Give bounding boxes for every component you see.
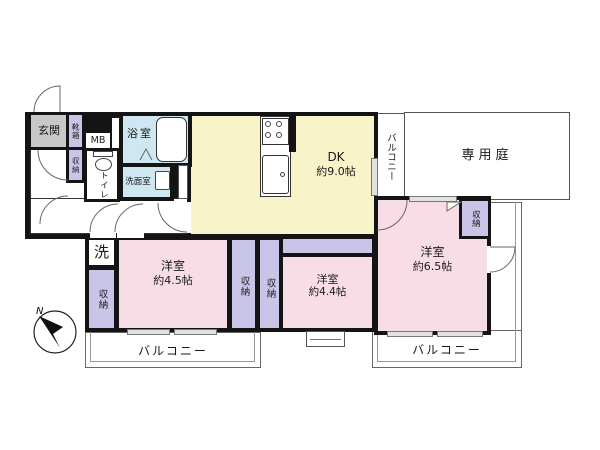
dk-door-arc <box>158 203 187 232</box>
room45-door-arc <box>115 204 143 232</box>
entrance-door-arc <box>34 86 60 112</box>
hall-door-arc <box>40 196 68 224</box>
folding-door-mark <box>140 149 152 160</box>
hall-door-arc <box>90 204 118 232</box>
room65-door-arc <box>377 200 407 230</box>
door-arcs <box>34 86 515 272</box>
room65-garden-door-arc <box>490 247 515 272</box>
floor-plan: 玄関 靴箱 MB 収納 トイレ 浴室 洗面室 DK約9.0帖 専用庭 バルコニー… <box>0 0 600 450</box>
plan-overlay: N <box>0 0 600 450</box>
compass-icon: N <box>34 306 76 353</box>
closet-door-mark <box>447 202 461 211</box>
hall-door-arc <box>38 150 68 180</box>
compass-n-label: N <box>36 306 44 317</box>
